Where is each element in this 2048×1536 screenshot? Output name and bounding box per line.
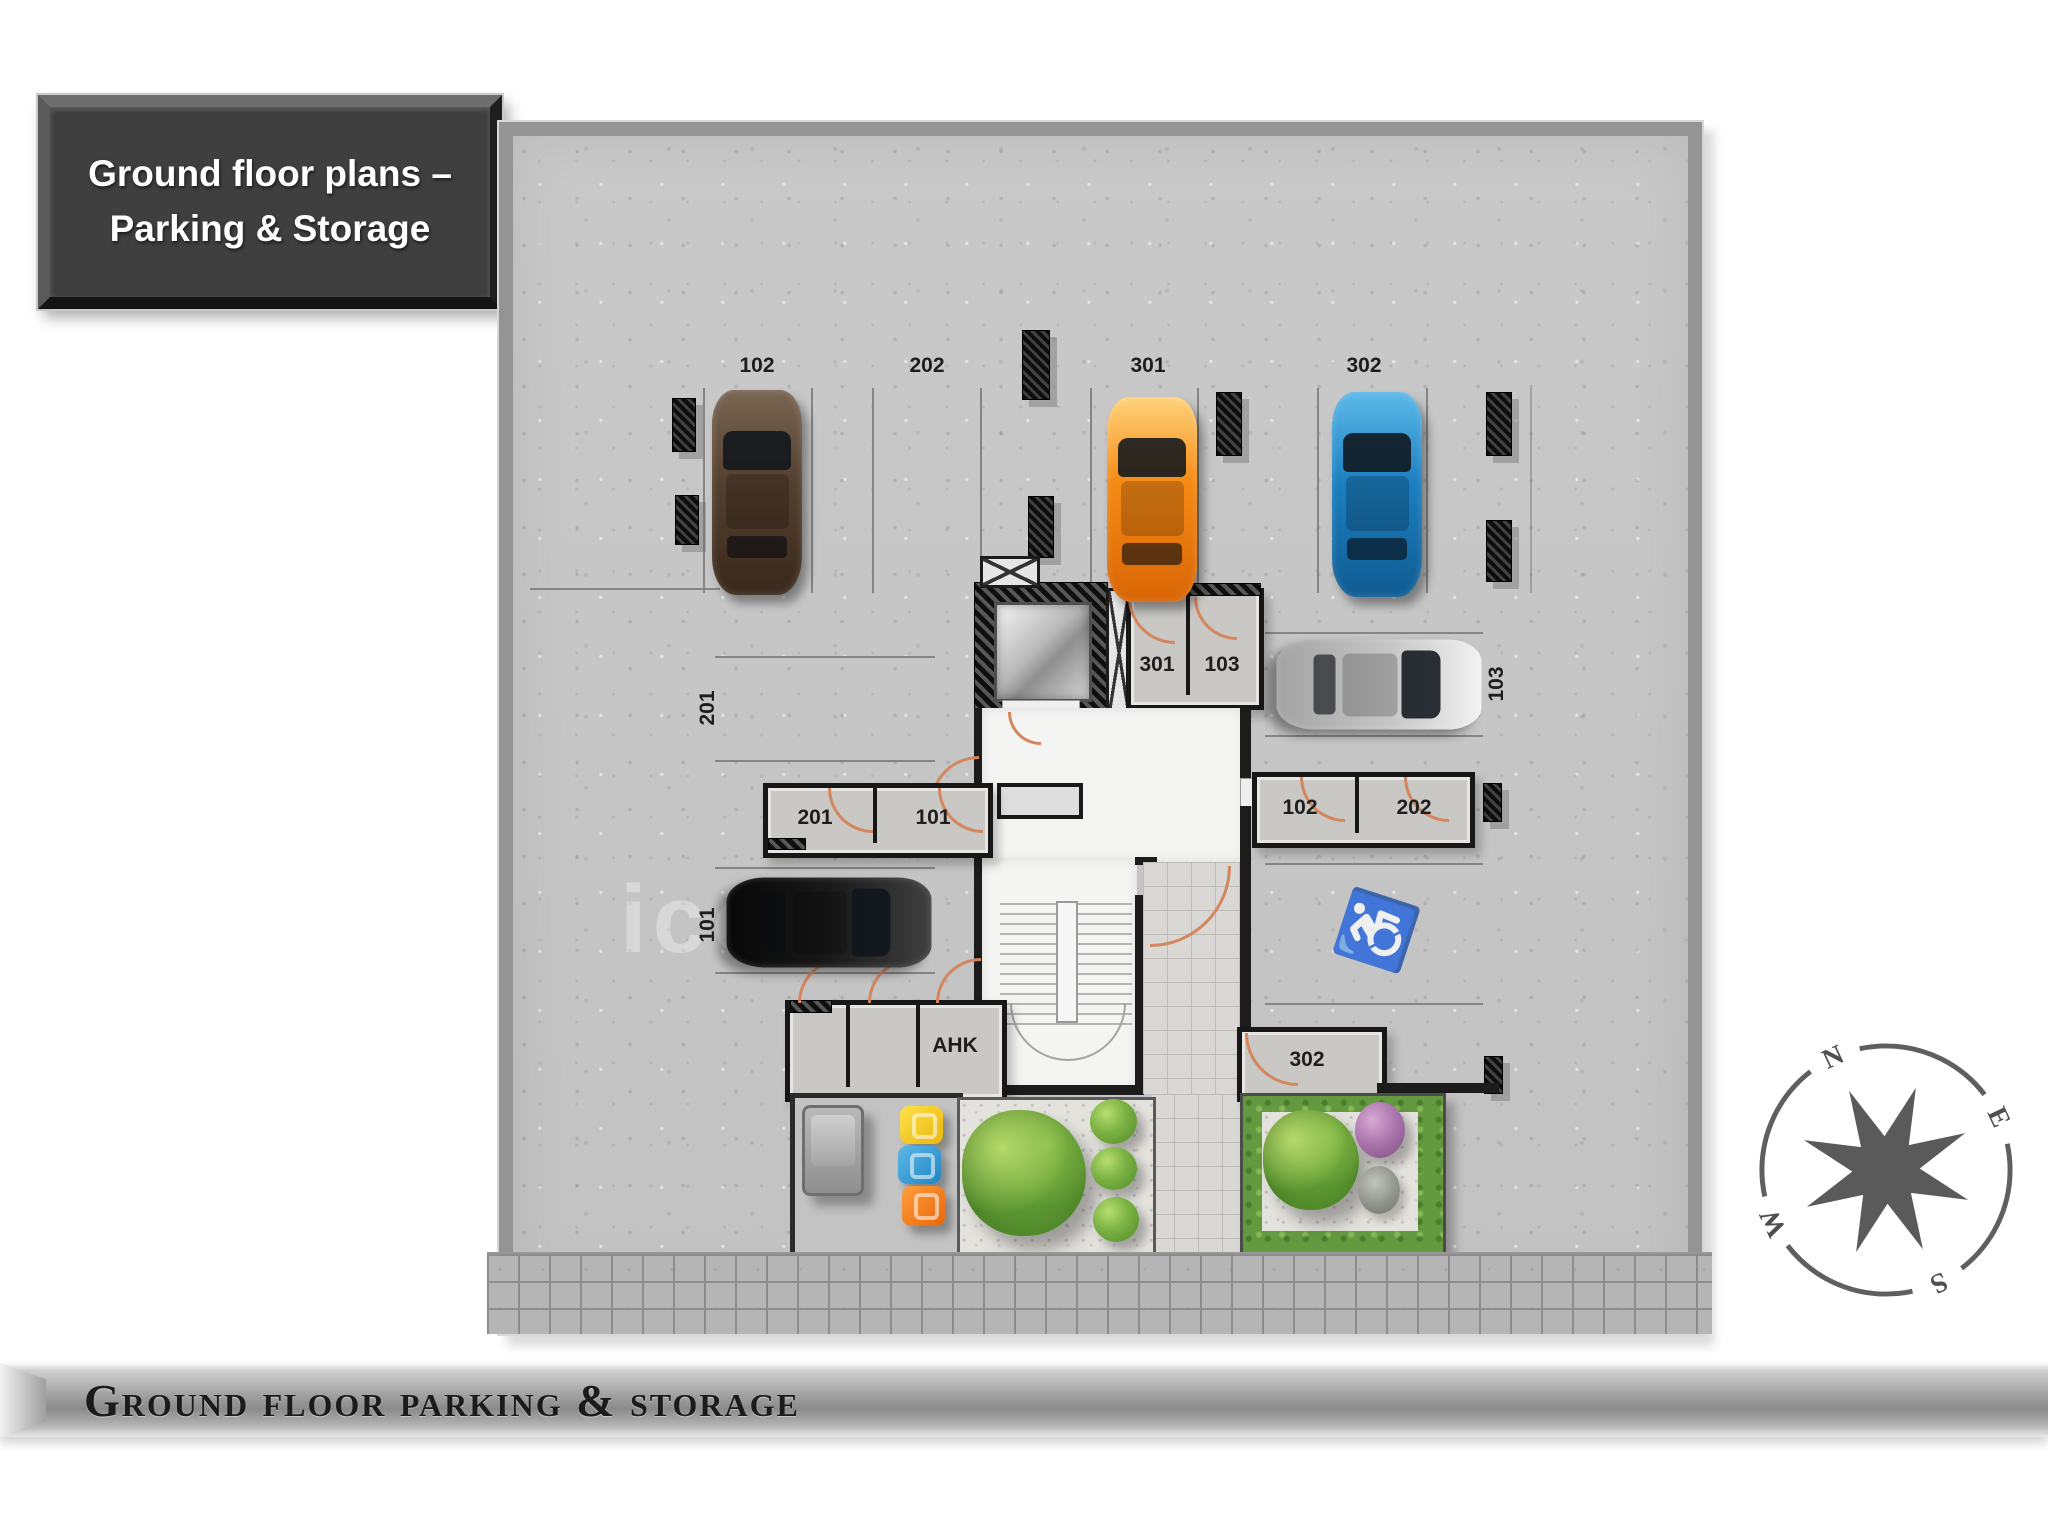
room-divider <box>1355 777 1359 833</box>
title-plaque: Ground floor plans – Parking & Storage <box>38 95 502 309</box>
parking-label-301: 301 <box>1130 354 1165 378</box>
parking-line <box>1265 735 1483 737</box>
wall <box>1240 806 1251 862</box>
compass-letter-s: S <box>1925 1265 1952 1300</box>
parking-label-103: 103 <box>1485 666 1509 701</box>
wall <box>1135 895 1143 1092</box>
sidewalk-tiles <box>487 1252 1712 1334</box>
slide: Ground floor plans – Parking & Storage <box>0 0 2048 1536</box>
storage-label-102: 102 <box>1282 796 1317 820</box>
parking-line <box>1090 388 1092 593</box>
compass-rose: N E S W <box>1752 1036 2020 1304</box>
room-divider <box>846 1005 850 1087</box>
parking-line <box>1265 632 1483 634</box>
storage-label-302: 302 <box>1289 1048 1324 1072</box>
column-pillar <box>675 495 699 545</box>
car-windshield <box>1343 433 1411 472</box>
chair-yellow <box>900 1106 943 1144</box>
column-pillar <box>672 398 696 452</box>
chair-orange <box>902 1186 945 1226</box>
sofa <box>802 1105 864 1196</box>
bush-gray <box>1358 1166 1400 1214</box>
car-windshield <box>723 431 791 470</box>
tree <box>1263 1110 1359 1210</box>
car-rear-window <box>1347 538 1406 561</box>
parking-label-201: 201 <box>696 690 720 725</box>
title-line-2: Parking & Storage <box>110 209 431 250</box>
column-pillar <box>1486 392 1512 456</box>
car-blue <box>1332 392 1422 597</box>
car-windshield <box>852 888 891 956</box>
parking-label-102: 102 <box>739 354 774 378</box>
car-black <box>727 878 932 968</box>
storage-label-103: 103 <box>1204 653 1239 677</box>
title-line-1: Ground floor plans – <box>88 154 452 195</box>
storage-label-201: 201 <box>797 806 832 830</box>
parking-line <box>530 588 720 590</box>
parking-line <box>715 656 935 658</box>
car-roof <box>1346 476 1409 531</box>
car-rear-window <box>1313 655 1336 714</box>
car-rear-window <box>1122 543 1181 566</box>
compass-letter-n: N <box>1818 1039 1849 1076</box>
car-roof <box>1342 653 1397 716</box>
parking-line <box>1317 388 1319 593</box>
wall <box>1240 862 1251 1032</box>
car-rear-window <box>727 536 786 559</box>
column-pillar <box>1483 783 1502 822</box>
car-silver <box>1277 640 1482 730</box>
storage-label-101: 101 <box>915 806 950 830</box>
bush <box>1093 1197 1139 1242</box>
car-roof <box>1121 481 1184 536</box>
vent-shaft-icon <box>980 556 1040 588</box>
room-divider <box>916 1005 920 1087</box>
column-pillar <box>1216 392 1242 456</box>
column-pillar <box>1022 330 1050 400</box>
compass-letter-e: E <box>1981 1102 2017 1132</box>
storage-label-ahk: AHK <box>932 1034 978 1058</box>
car-windshield <box>1118 438 1186 477</box>
column-pillar <box>1028 496 1054 558</box>
parking-line <box>703 388 705 593</box>
column-pillar <box>1486 520 1512 582</box>
footer-caption: Ground floor parking & storage <box>84 1374 800 1427</box>
car-windshield <box>1402 650 1441 718</box>
wall <box>1240 708 1251 778</box>
compass-star <box>1804 1088 1968 1252</box>
compass-letter-w: W <box>1753 1204 1793 1242</box>
tree <box>962 1110 1086 1236</box>
entrance-corridor <box>1150 1094 1240 1252</box>
car-brown <box>712 390 802 595</box>
parking-label-101: 101 <box>696 907 720 942</box>
parking-label-202: 202 <box>909 354 944 378</box>
car-orange <box>1107 397 1197 602</box>
parking-line <box>1265 863 1483 865</box>
parking-line <box>1426 388 1428 593</box>
wall-hatch <box>768 838 806 850</box>
parking-line <box>1530 388 1532 593</box>
storage-label-301: 301 <box>1139 653 1174 677</box>
parking-label-302: 302 <box>1346 354 1381 378</box>
car-roof <box>726 474 789 529</box>
wall <box>1377 1083 1499 1093</box>
lobby-closet <box>997 783 1083 819</box>
parking-line <box>811 388 813 593</box>
car-roof <box>792 891 847 954</box>
footer-banner: Ground floor parking & storage <box>0 1363 2048 1437</box>
parking-line <box>872 388 874 593</box>
bush <box>1091 1147 1137 1190</box>
car-rear-window <box>763 893 786 952</box>
parking-line <box>715 760 935 762</box>
room-divider <box>1186 593 1190 695</box>
parking-line <box>1197 388 1199 593</box>
storage-label-202: 202 <box>1396 796 1431 820</box>
room-divider <box>873 788 877 843</box>
chair-blue <box>898 1146 941 1184</box>
bush <box>1090 1099 1137 1144</box>
parking-line <box>1265 1003 1483 1005</box>
elevator-icon <box>994 602 1092 702</box>
bush-purple <box>1355 1102 1405 1158</box>
